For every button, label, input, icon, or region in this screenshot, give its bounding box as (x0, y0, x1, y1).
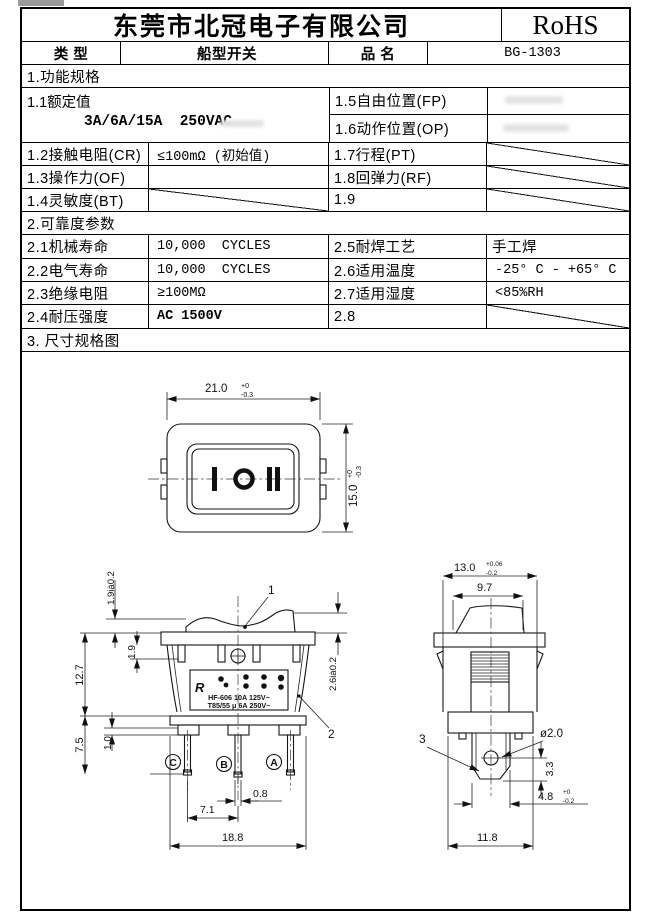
contact-resistance-value: ≤100mΩ (初始值) (149, 143, 329, 165)
row-2-3: 2.3绝缘电阻 ≥100MΩ 2.7适用湿度 <85%RH (22, 282, 629, 305)
row-2-4: 2.4耐压强度 AC 1500V 2.8 (22, 305, 629, 329)
dielectric-strength-value: AC 1500V (149, 305, 329, 328)
position-rows: 1.5自由位置(FP) 1.6动作位置(OP) (330, 88, 629, 142)
name-label: 品 名 (329, 42, 428, 64)
contact-resistance-label: 1.2接触电阻(CR) (22, 143, 149, 165)
type-label: 类 型 (22, 42, 121, 64)
row-1-9-value (487, 189, 629, 211)
insulation-resistance-value: ≥100MΩ (149, 282, 329, 304)
mechanical-life-label: 2.1机械寿命 (22, 235, 149, 258)
humidity-value: <85%RH (487, 282, 629, 304)
drawing-area (22, 352, 629, 909)
operating-position-label: 1.6动作位置(OP) (330, 115, 488, 142)
operating-force-label: 1.3操作力(OF) (22, 166, 149, 188)
free-position-label: 1.5自由位置(FP) (330, 88, 488, 114)
scan-artifact (220, 120, 264, 127)
sensitivity-value (149, 189, 329, 211)
header-row: 东莞市北冠电子有限公司 RoHS (22, 9, 629, 42)
section-3-header: 3. 尺寸规格图 (22, 329, 629, 352)
row-1-5: 1.5自由位置(FP) (330, 88, 629, 115)
rated-value: 3A/6A/15A 250VAC (22, 114, 329, 130)
operating-force-value (149, 166, 329, 188)
soldering-label: 2.5耐焊工艺 (329, 235, 487, 258)
name-value: BG-1303 (428, 42, 629, 64)
row-2-1: 2.1机械寿命 10,000 CYCLES 2.5耐焊工艺 手工焊 (22, 235, 629, 259)
scan-artifact (18, 0, 64, 6)
scan-artifact (503, 124, 569, 132)
rohs-badge: RoHS (502, 9, 629, 41)
row-1-4: 1.4灵敏度(BT) 1.9 (22, 189, 629, 212)
section-1-header: 1.功能规格 (22, 65, 629, 88)
row-1-2: 1.2接触电阻(CR) ≤100mΩ (初始值) 1.7行程(PT) (22, 143, 629, 166)
row-2-8-label: 2.8 (329, 305, 487, 328)
travel-value (487, 143, 629, 165)
travel-label: 1.7行程(PT) (329, 143, 487, 165)
company-name: 东莞市北冠电子有限公司 (22, 9, 502, 41)
scan-artifact (505, 96, 563, 104)
row-2-8-value (487, 305, 629, 328)
rebound-force-label: 1.8回弹力(RF) (329, 166, 487, 188)
electrical-life-label: 2.2电气寿命 (22, 259, 149, 281)
spec-table: 东莞市北冠电子有限公司 RoHS 类 型 船型开关 品 名 BG-1303 1.… (20, 7, 631, 911)
spec-sheet-page: { "header": { "company": "东莞市北冠电子有限公司", … (0, 0, 650, 919)
rated-value-label: 1.1额定值 (22, 91, 329, 112)
temperature-label: 2.6适用温度 (329, 259, 487, 281)
mechanical-life-value: 10,000 CYCLES (149, 235, 329, 258)
row-1-6: 1.6动作位置(OP) (330, 115, 629, 142)
type-row: 类 型 船型开关 品 名 BG-1303 (22, 42, 629, 65)
soldering-value: 手工焊 (487, 235, 629, 258)
row-1-3: 1.3操作力(OF) 1.8回弹力(RF) (22, 166, 629, 189)
row-2-2: 2.2电气寿命 10,000 CYCLES 2.6适用温度 -25° C - +… (22, 259, 629, 282)
dielectric-strength-label: 2.4耐压强度 (22, 305, 149, 328)
electrical-life-value: 10,000 CYCLES (149, 259, 329, 281)
rated-value-cell: 1.1额定值 3A/6A/15A 250VAC (22, 88, 330, 142)
section-2-header: 2.可靠度参数 (22, 212, 629, 235)
rebound-force-value (487, 166, 629, 188)
temperature-value: -25° C - +65° C (487, 259, 629, 281)
type-value: 船型开关 (121, 42, 329, 64)
humidity-label: 2.7适用湿度 (329, 282, 487, 304)
insulation-resistance-label: 2.3绝缘电阻 (22, 282, 149, 304)
sensitivity-label: 1.4灵敏度(BT) (22, 189, 149, 211)
row-1-9-label: 1.9 (329, 189, 487, 211)
